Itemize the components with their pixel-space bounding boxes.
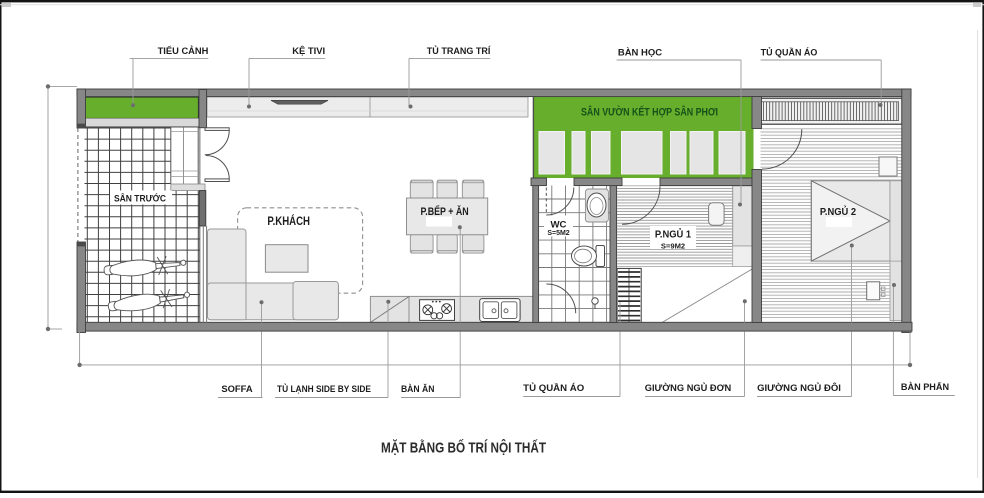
svg-text:KỆ TIVI: KỆ TIVI <box>292 45 325 57</box>
svg-text:P.BẾP + ĂN: P.BẾP + ĂN <box>421 205 469 218</box>
svg-text:SÂN TRƯỚC: SÂN TRƯỚC <box>114 193 166 205</box>
svg-text:P.KHÁCH: P.KHÁCH <box>267 215 310 228</box>
svg-text:P.NGỦ 2: P.NGỦ 2 <box>820 205 857 218</box>
svg-text:GIƯỜNG NGỦ ĐƠN: GIƯỜNG NGỦ ĐƠN <box>645 382 732 394</box>
svg-text:TỦ QUẦN ÁO: TỦ QUẦN ÁO <box>761 47 818 59</box>
svg-text:SOFFA: SOFFA <box>221 384 252 395</box>
svg-text:TIỂU CẢNH: TIỂU CẢNH <box>158 45 209 57</box>
svg-text:MẶT BẰNG BỐ TRÍ NỘI THẤT: MẶT BẰNG BỐ TRÍ NỘI THẤT <box>381 439 546 457</box>
svg-text:S=9M2: S=9M2 <box>661 242 685 251</box>
svg-text:GIƯỜNG NGỦ ĐÔI: GIƯỜNG NGỦ ĐÔI <box>757 382 841 394</box>
svg-text:SÂN VƯỜN KẾT HỢP SÂN PHƠI: SÂN VƯỜN KẾT HỢP SÂN PHƠI <box>581 106 718 119</box>
svg-text:TỦ TRANG TRÍ: TỦ TRANG TRÍ <box>427 45 491 57</box>
svg-text:P.NGỦ 1: P.NGỦ 1 <box>655 227 692 240</box>
svg-text:BÀN PHẤN: BÀN PHẤN <box>901 381 949 393</box>
svg-text:WC: WC <box>551 220 567 231</box>
svg-text:TỦ QUẦN ÁO: TỦ QUẦN ÁO <box>523 382 585 394</box>
svg-text:BÀN ĂN: BÀN ĂN <box>401 383 435 395</box>
svg-text:S=5M2: S=5M2 <box>547 230 569 237</box>
svg-text:BÀN HỌC: BÀN HỌC <box>618 47 662 59</box>
svg-text:TỦ LẠNH SIDE BY SIDE: TỦ LẠNH SIDE BY SIDE <box>277 383 372 395</box>
